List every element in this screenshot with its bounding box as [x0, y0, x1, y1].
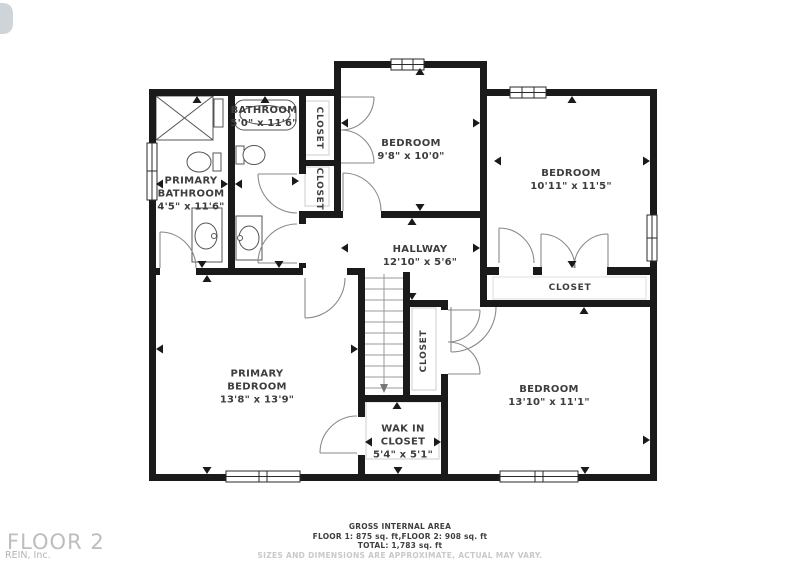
- window: [226, 471, 300, 482]
- dimension-arrow-icon: [643, 157, 650, 166]
- corner-logo: [0, 3, 13, 34]
- closet-label-stairs-side: CLOSET: [419, 330, 429, 373]
- room-name: BATHROOM: [209, 104, 319, 117]
- room-dims: 12'10" x 5'6": [360, 256, 480, 269]
- room-name: PRIMARY BEDROOM: [207, 368, 307, 394]
- room-dims: 5'4" x 5'1": [372, 449, 434, 462]
- total-area: TOTAL: 1,783 sq. ft: [257, 541, 542, 551]
- room-name: WAK IN CLOSET: [372, 423, 434, 449]
- room-name: PRIMARY BATHROOM: [145, 175, 237, 201]
- dimension-arrow-icon: [494, 157, 501, 166]
- room-dims: 4'5" x 11'6": [145, 201, 237, 214]
- toilet-primary: [187, 152, 221, 172]
- window: [500, 471, 578, 482]
- room-dims: 5'0" x 11'6": [209, 117, 319, 130]
- dimension-arrow-icon: [581, 467, 590, 474]
- floorplan-drawing: [0, 0, 800, 565]
- dimension-arrow-icon: [568, 96, 577, 103]
- room-label-bedroom-top: BEDROOM 9'8" x 10'0": [351, 137, 471, 163]
- window: [510, 87, 546, 98]
- room-label-bedroom-bottom: BEDROOM 13'10" x 11'1": [489, 383, 609, 409]
- room-label-primary-bedroom: PRIMARY BEDROOM 13'8" x 13'9": [207, 368, 307, 407]
- gross-area-note: GROSS INTERNAL AREA FLOOR 1: 875 sq. ft,…: [257, 522, 542, 560]
- room-dims: 10'11" x 11'5": [511, 180, 631, 193]
- floorplan-page: PRIMARY BATHROOM 4'5" x 11'6" BATHROOM 5…: [0, 0, 800, 565]
- dimension-arrow-icon: [203, 275, 212, 282]
- vanity-sink-hall-bath: [236, 216, 262, 260]
- room-dims: 9'8" x 10'0": [351, 150, 471, 163]
- dimension-arrow-icon: [203, 467, 212, 474]
- disclaimer: SIZES AND DIMENSIONS ARE APPROXIMATE, AC…: [257, 551, 542, 561]
- room-label-primary-bathroom: PRIMARY BATHROOM 4'5" x 11'6": [145, 175, 237, 214]
- closet-label-upper: CLOSET: [314, 107, 324, 150]
- dimension-arrow-icon: [394, 467, 403, 474]
- dimension-arrow-icon: [351, 345, 358, 354]
- vanity-sink-primary: [192, 208, 222, 262]
- dimension-arrow-icon: [416, 204, 425, 211]
- room-dims: 13'10" x 11'1": [489, 396, 609, 409]
- room-name: BEDROOM: [489, 383, 609, 396]
- room-name: BEDROOM: [351, 137, 471, 150]
- dimension-arrow-icon: [156, 345, 163, 354]
- room-label-bathroom: BATHROOM 5'0" x 11'6": [209, 104, 319, 130]
- dimension-arrow-icon: [341, 244, 348, 253]
- dimension-arrow-icon: [393, 402, 402, 409]
- dimension-arrow-icon: [408, 218, 417, 225]
- dimension-arrow-icon: [292, 177, 299, 186]
- staircase: [365, 274, 403, 393]
- window: [647, 215, 657, 261]
- room-label-hallway: HALLWAY 12'10" x 5'6": [360, 243, 480, 269]
- room-name: HALLWAY: [360, 243, 480, 256]
- room-dims: 13'8" x 13'9": [207, 394, 307, 407]
- closet-label-lower: CLOSET: [314, 168, 324, 211]
- dimension-arrow-icon: [198, 261, 207, 268]
- gross-area-title: GROSS INTERNAL AREA: [257, 522, 542, 532]
- dimension-arrow-icon: [341, 119, 348, 128]
- room-label-bedroom-right: BEDROOM 10'11" x 11'5": [511, 167, 631, 193]
- dimension-arrow-icon: [434, 438, 441, 447]
- dimension-arrow-icon: [275, 261, 284, 268]
- room-label-walk-in-closet: WAK IN CLOSET 5'4" x 5'1": [372, 423, 434, 462]
- brand-watermark: REIN, Inc.: [5, 550, 51, 561]
- toilet-hall-bath: [236, 146, 265, 165]
- window: [391, 59, 424, 70]
- dimension-arrow-icon: [580, 307, 589, 314]
- dimension-arrow-icon: [473, 119, 480, 128]
- closet-label-bedroom-strip: CLOSET: [549, 283, 592, 293]
- room-name: BEDROOM: [511, 167, 631, 180]
- dimension-arrow-icon: [643, 436, 650, 445]
- floor-areas: FLOOR 1: 875 sq. ft,FLOOR 2: 908 sq. ft: [257, 532, 542, 542]
